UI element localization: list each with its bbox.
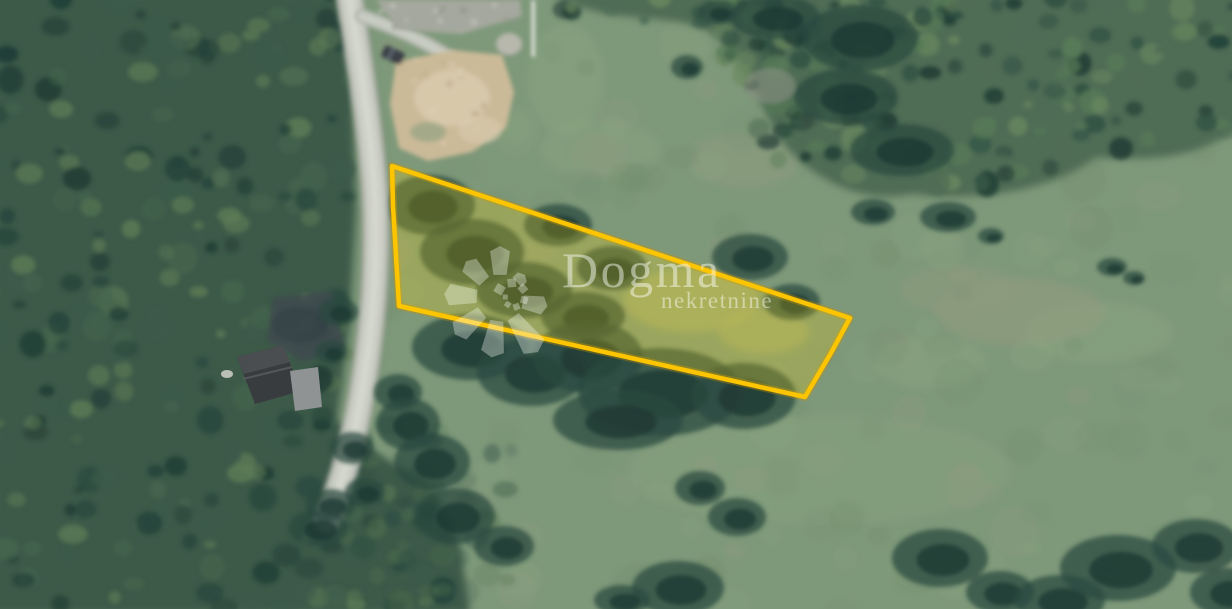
utility-pole	[532, 0, 536, 57]
dry-twig-patch	[744, 68, 796, 104]
bare-soil-highlight	[458, 116, 502, 144]
satellite-listing-image: Dogma nekretnine	[0, 0, 1232, 609]
house-light-wing	[290, 367, 322, 411]
rock	[496, 33, 522, 55]
aerial-photo: Dogma nekretnine	[0, 0, 1232, 609]
watermark-tagline-text: nekretnine	[661, 288, 773, 313]
small-object	[221, 370, 233, 378]
grass-tongue	[410, 122, 446, 142]
